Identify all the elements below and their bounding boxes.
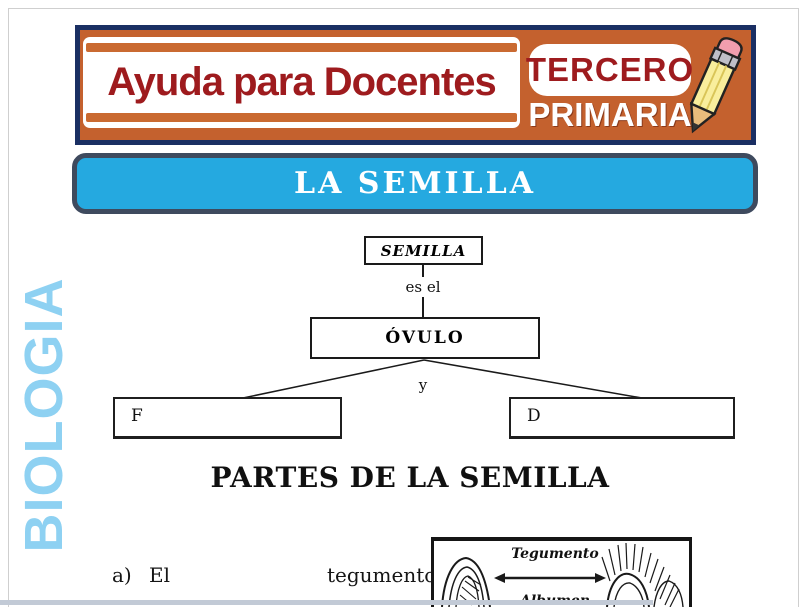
list-item-marker: a): [112, 563, 132, 587]
figure-label-tegumento: Tegumento: [495, 546, 615, 562]
title-bar: LA SEMILLA: [72, 153, 758, 214]
pencil-icon: [673, 32, 753, 140]
grade-line1: TERCERO: [526, 51, 694, 89]
paragraph-word: tegumento,: [327, 563, 443, 587]
header-banner: Ayuda para Docentes TERCERO PRIMARIA: [75, 25, 756, 145]
page-title: LA SEMILLA: [294, 166, 536, 201]
concept-middle-node: ÓVULO: [310, 317, 540, 359]
connector-text-top: es el: [373, 278, 473, 296]
brand-plate: Ayuda para Docentes: [83, 37, 520, 128]
right-answer-box: D: [509, 397, 735, 439]
connector-line: [422, 297, 424, 317]
grade-badge: TERCERO: [529, 44, 691, 96]
concept-root-node: SEMILLA: [364, 236, 483, 265]
connector-text-bottom: y: [398, 376, 448, 394]
subject-sidebar-label: BIOLOGIA: [12, 245, 76, 585]
worksheet-page: Ayuda para Docentes TERCERO PRIMARIA LA …: [0, 0, 807, 607]
left-answer-box: F: [113, 397, 342, 439]
brand-title: Ayuda para Docentes: [83, 46, 520, 119]
grade-line2: PRIMARIA: [525, 96, 695, 134]
page-bottom-edge: [0, 600, 653, 605]
section-heading: PARTES DE LA SEMILLA: [104, 461, 716, 494]
seed-figure: Tegumento Albumen: [431, 537, 692, 607]
paragraph-word: El: [149, 563, 170, 587]
connector-line: [422, 265, 424, 277]
